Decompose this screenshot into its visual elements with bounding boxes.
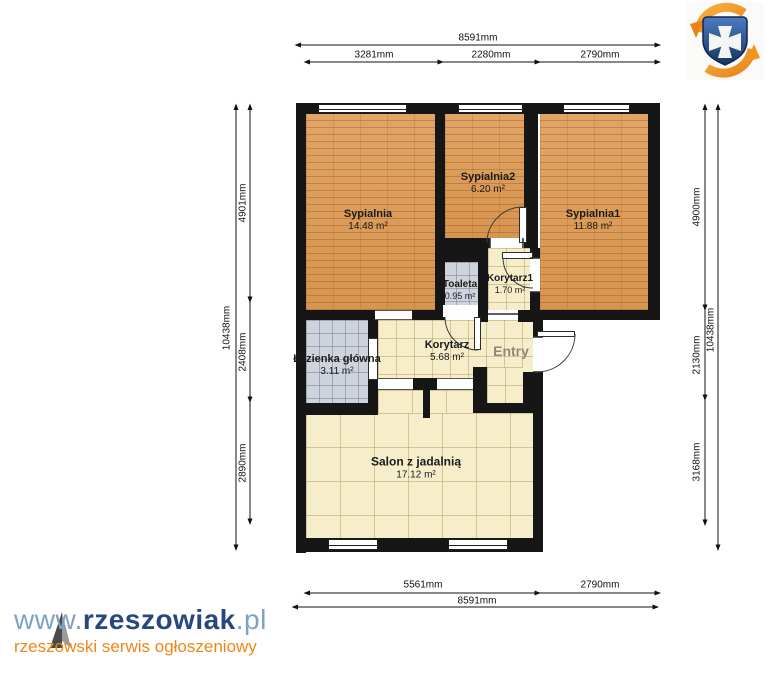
room-label-sypialnia: Sypialnia 14.48 m² bbox=[344, 208, 392, 232]
wall-sypialnia-bottom-left bbox=[296, 310, 375, 320]
korytarz1-entry-opening bbox=[488, 310, 518, 317]
watermark-brand: rzeszowiak bbox=[83, 604, 236, 635]
entry-door-leaf bbox=[537, 331, 575, 337]
sypialnia2-door-leaf bbox=[519, 207, 527, 243]
window bbox=[448, 539, 508, 550]
toaleta-doorway bbox=[443, 305, 478, 317]
wall-left bbox=[296, 103, 306, 553]
dim-left-seg3: 2890mm bbox=[238, 442, 249, 485]
wall-entry-right bbox=[523, 372, 543, 413]
room-label-korytarz: Korytarz 5.68 m² bbox=[425, 339, 470, 363]
korytarz-salon-opening-right bbox=[437, 378, 473, 390]
room-name: Toaleta bbox=[443, 279, 477, 291]
entry-nook-floor bbox=[487, 367, 523, 403]
wall-korytarz1-entry bbox=[518, 310, 543, 322]
dim-top-seg3: 2790mm bbox=[579, 50, 622, 61]
watermark: www.rzeszowiak.pl rzeszowski serwis ogło… bbox=[14, 604, 267, 657]
dim-left-seg1: 4901mm bbox=[238, 182, 249, 225]
room-area: 14.48 m² bbox=[344, 221, 392, 233]
korytarz-salon-opening-left bbox=[378, 378, 413, 390]
dim-bottom-total: 8591mm bbox=[456, 596, 499, 607]
dim-right-seg2: 2130mm bbox=[692, 334, 703, 377]
wall-sypialnia1-bottom bbox=[533, 310, 660, 320]
window bbox=[318, 104, 407, 113]
room-label-korytarz1: Korytarz1 1.70 m² bbox=[487, 273, 533, 295]
dim-bottom-seg2: 2790mm bbox=[579, 580, 622, 591]
wall-sypialnia-bottom-right bbox=[412, 310, 435, 320]
dim-right-seg1: 4900mm bbox=[692, 186, 703, 229]
room-area: 1.70 m² bbox=[487, 285, 533, 295]
floor-plan-page: Sypialnia 14.48 m² Sypialnia2 6.20 m² Sy… bbox=[0, 0, 772, 675]
room-label-sypialnia1: Sypialnia1 11.88 m² bbox=[566, 208, 620, 232]
room-area: 11.88 m² bbox=[566, 221, 620, 233]
dim-right-total: 10438mm bbox=[706, 306, 717, 354]
room-name: Korytarz1 bbox=[487, 273, 533, 285]
window bbox=[328, 539, 378, 550]
dim-top-seg1: 3281mm bbox=[353, 50, 396, 61]
watermark-tagline: rzeszowski serwis ogłoszeniowy bbox=[14, 637, 267, 657]
dim-top-total: 8591mm bbox=[457, 33, 500, 44]
room-label-entry: Entry bbox=[493, 343, 529, 359]
window bbox=[563, 104, 630, 113]
room-area: 17.12 m² bbox=[371, 469, 461, 481]
room-label-sypialnia2: Sypialnia2 6.20 m² bbox=[461, 171, 515, 195]
room-area: 6.20 m² bbox=[461, 184, 515, 196]
sypialnia-doorway bbox=[375, 310, 412, 320]
room-area: 3.11 m² bbox=[293, 366, 380, 378]
room-name: Salon z jadalnią bbox=[371, 455, 461, 469]
toaleta-door-leaf bbox=[474, 317, 481, 350]
window bbox=[458, 104, 523, 113]
dim-left-total: 10438mm bbox=[222, 304, 233, 352]
wall-stub-stem bbox=[423, 390, 430, 418]
dim-right-seg3: 3168mm bbox=[692, 441, 703, 484]
room-name: Korytarz bbox=[425, 339, 470, 352]
wall-right-upper bbox=[648, 114, 660, 320]
watermark-site-name: www.rzeszowiak.pl bbox=[14, 604, 267, 636]
room-label-lazienka: Łazienka główna 3.11 m² bbox=[293, 353, 380, 377]
dim-top-seg2: 2280mm bbox=[470, 50, 513, 61]
sypialnia1-door-leaf bbox=[502, 252, 533, 259]
dim-bottom-seg1: 5561mm bbox=[402, 580, 445, 591]
room-area: 5.68 m² bbox=[425, 352, 470, 364]
room-label-salon: Salon z jadalnią 17.12 m² bbox=[371, 455, 461, 480]
dim-left-seg2: 2408mm bbox=[238, 331, 249, 374]
rzeszowiak-logo-icon bbox=[686, 2, 764, 80]
watermark-tld: .pl bbox=[236, 604, 267, 635]
wall-lazienka-bottom bbox=[306, 403, 378, 415]
room-name: Sypialnia bbox=[344, 208, 392, 221]
room-name: Łazienka główna bbox=[293, 353, 380, 366]
entry-doorway bbox=[533, 337, 543, 372]
room-area: 0.95 m² bbox=[443, 291, 477, 301]
room-name: Sypialnia1 bbox=[566, 208, 620, 221]
room-label-toaleta: Toaleta 0.95 m² bbox=[443, 279, 477, 301]
room-name: Sypialnia2 bbox=[461, 171, 515, 184]
watermark-www: www. bbox=[14, 604, 83, 635]
room-name: Entry bbox=[493, 343, 529, 359]
wall-stub-horizontal bbox=[413, 378, 437, 390]
